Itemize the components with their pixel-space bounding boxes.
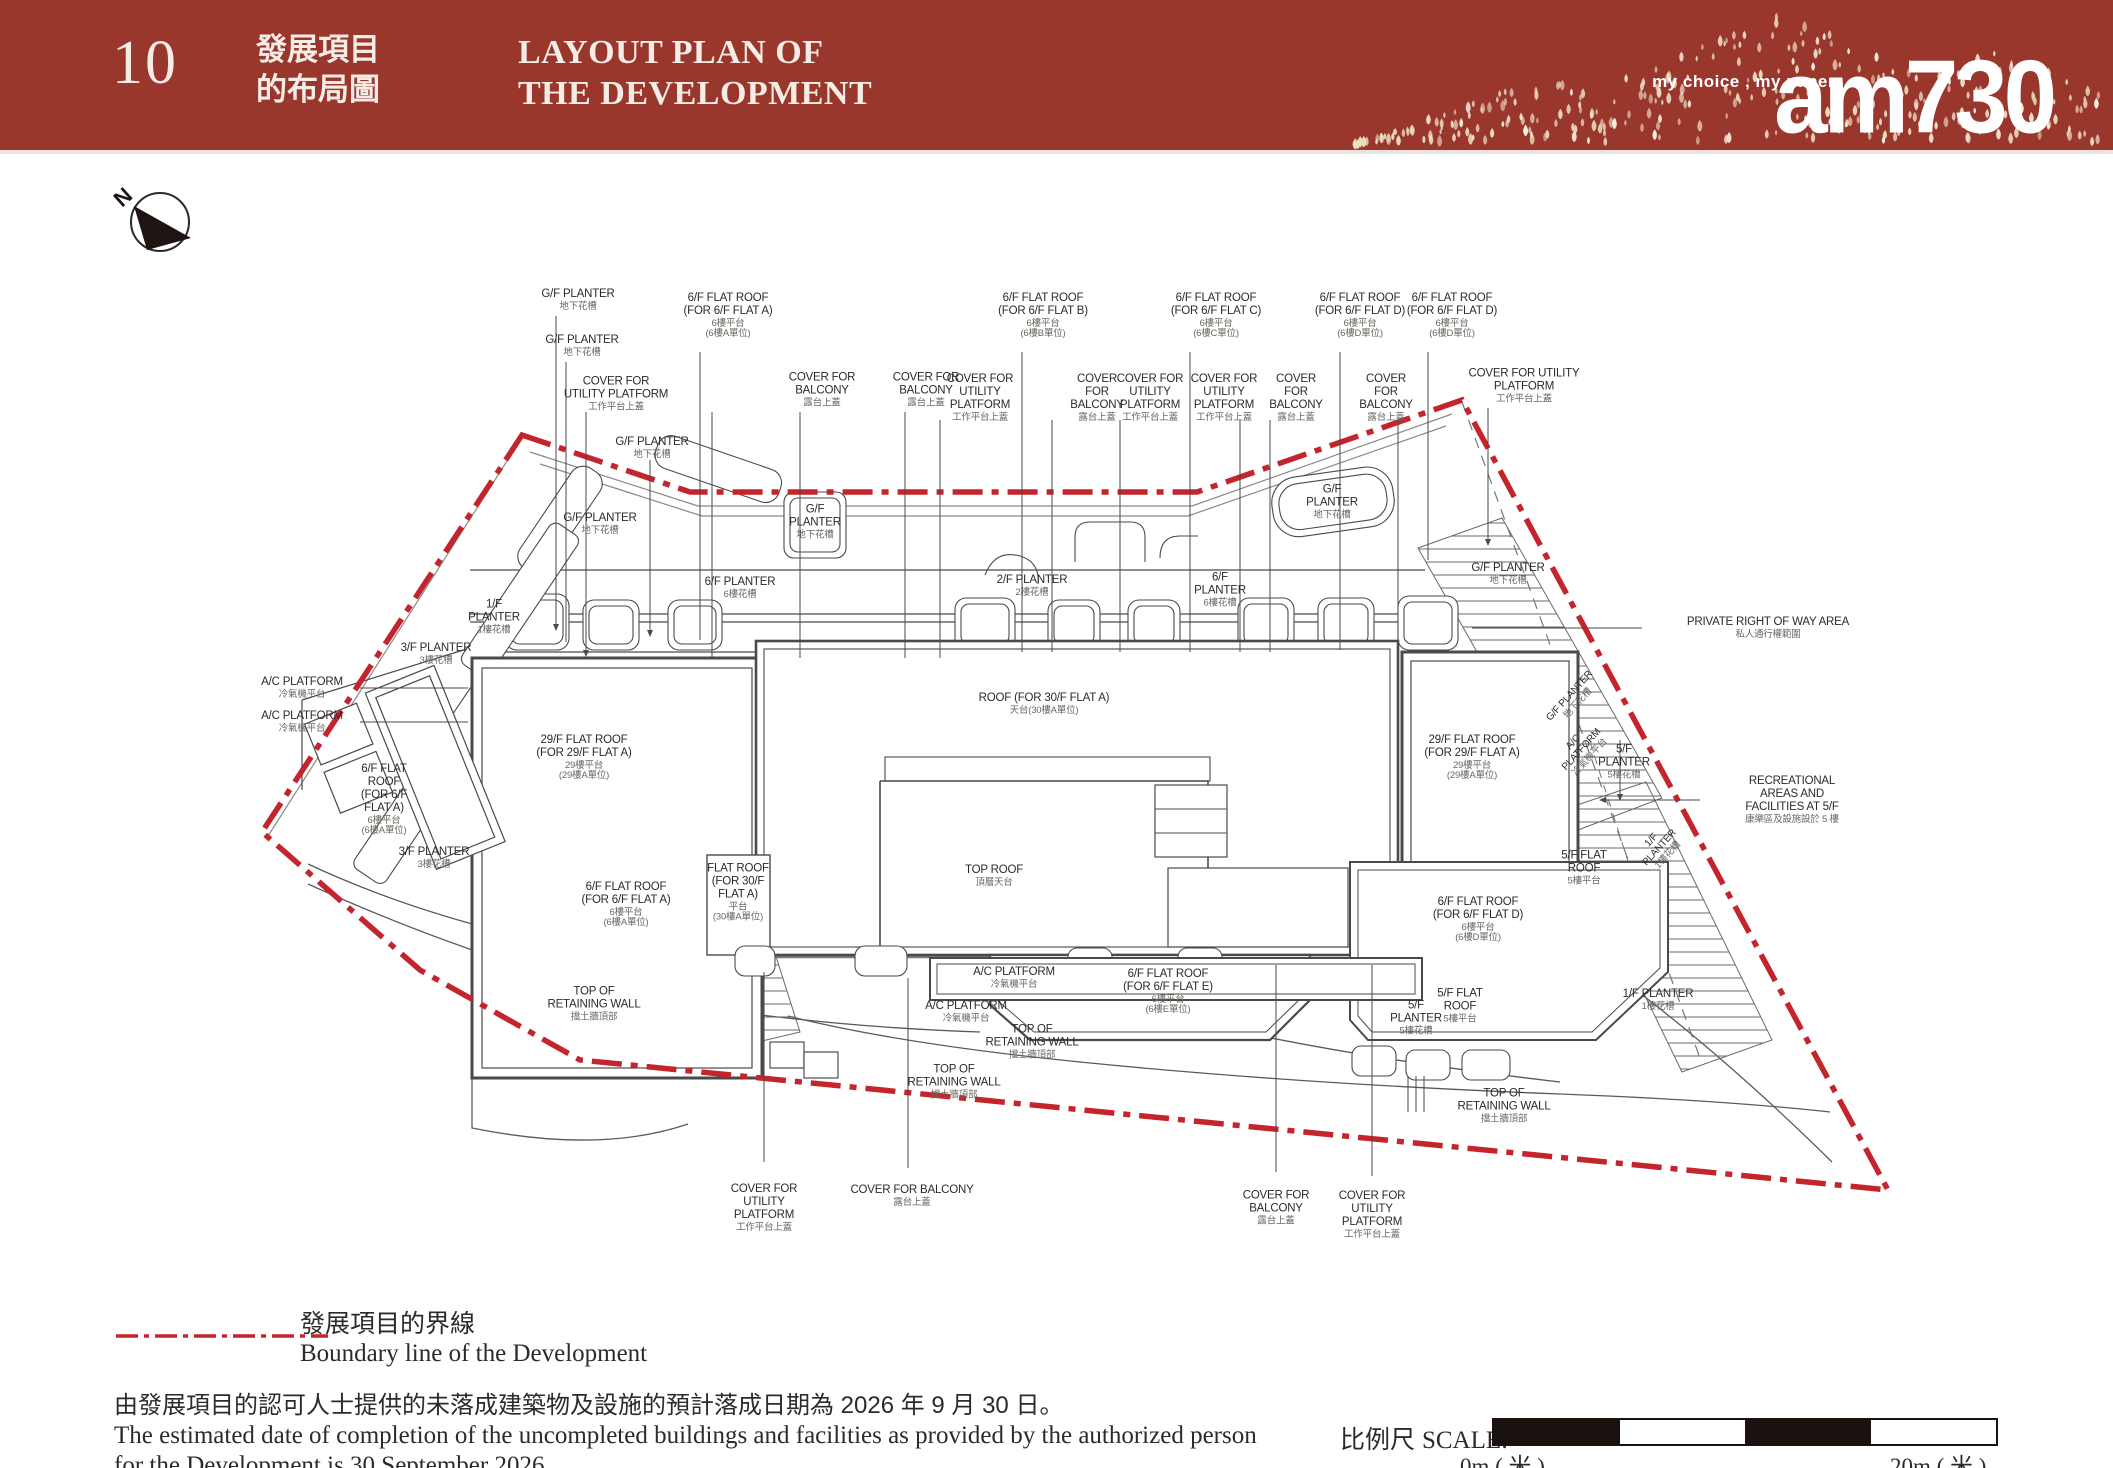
page-title-en: LAYOUT PLAN OF THE DEVELOPMENT (518, 32, 872, 115)
am730-logo: am730 (1774, 46, 2053, 150)
legend-label-zh: 發展項目的界線 (300, 1304, 475, 1340)
page-number: 10 (112, 28, 178, 99)
north-arrow: N (109, 183, 191, 251)
legend-boundary-swatch (112, 1328, 332, 1344)
scale-start-label: 0m ( 米 ) (1460, 1447, 1545, 1468)
brand-area: my choice , my paper am730 (1293, 0, 2113, 150)
scale-end-label: 20m ( 米 ) (1890, 1447, 1986, 1468)
plan-linework: N (0, 150, 2113, 1280)
pipe-lines (985, 522, 1198, 584)
block-central-roof (707, 641, 1398, 955)
legend-label-en: Boundary line of the Development (300, 1340, 647, 1368)
page-title-zh: 發展項目 的布局圖 (256, 30, 380, 109)
completion-note-zh: 由發展項目的認可人士提供的未落成建築物及設施的預計落成日期為 2026 年 9 … (114, 1385, 1063, 1420)
brochure-page: my choice , my paper am730 10 發展項目 的布局圖 … (0, 0, 2113, 1468)
header-bar: my choice , my paper am730 10 發展項目 的布局圖 … (0, 0, 2113, 150)
completion-note-en-1: The estimated date of completion of the … (114, 1422, 1257, 1450)
completion-note-en-2: for the Development is 30 September 2026… (114, 1452, 551, 1468)
site-plan: N G/F PLANTER地下花槽G/F PLANTER地下花槽COVER FO… (0, 150, 2113, 1280)
north-letter: N (109, 183, 138, 212)
ac-platform-box (930, 958, 1422, 1000)
scale-bar (1492, 1418, 1998, 1446)
